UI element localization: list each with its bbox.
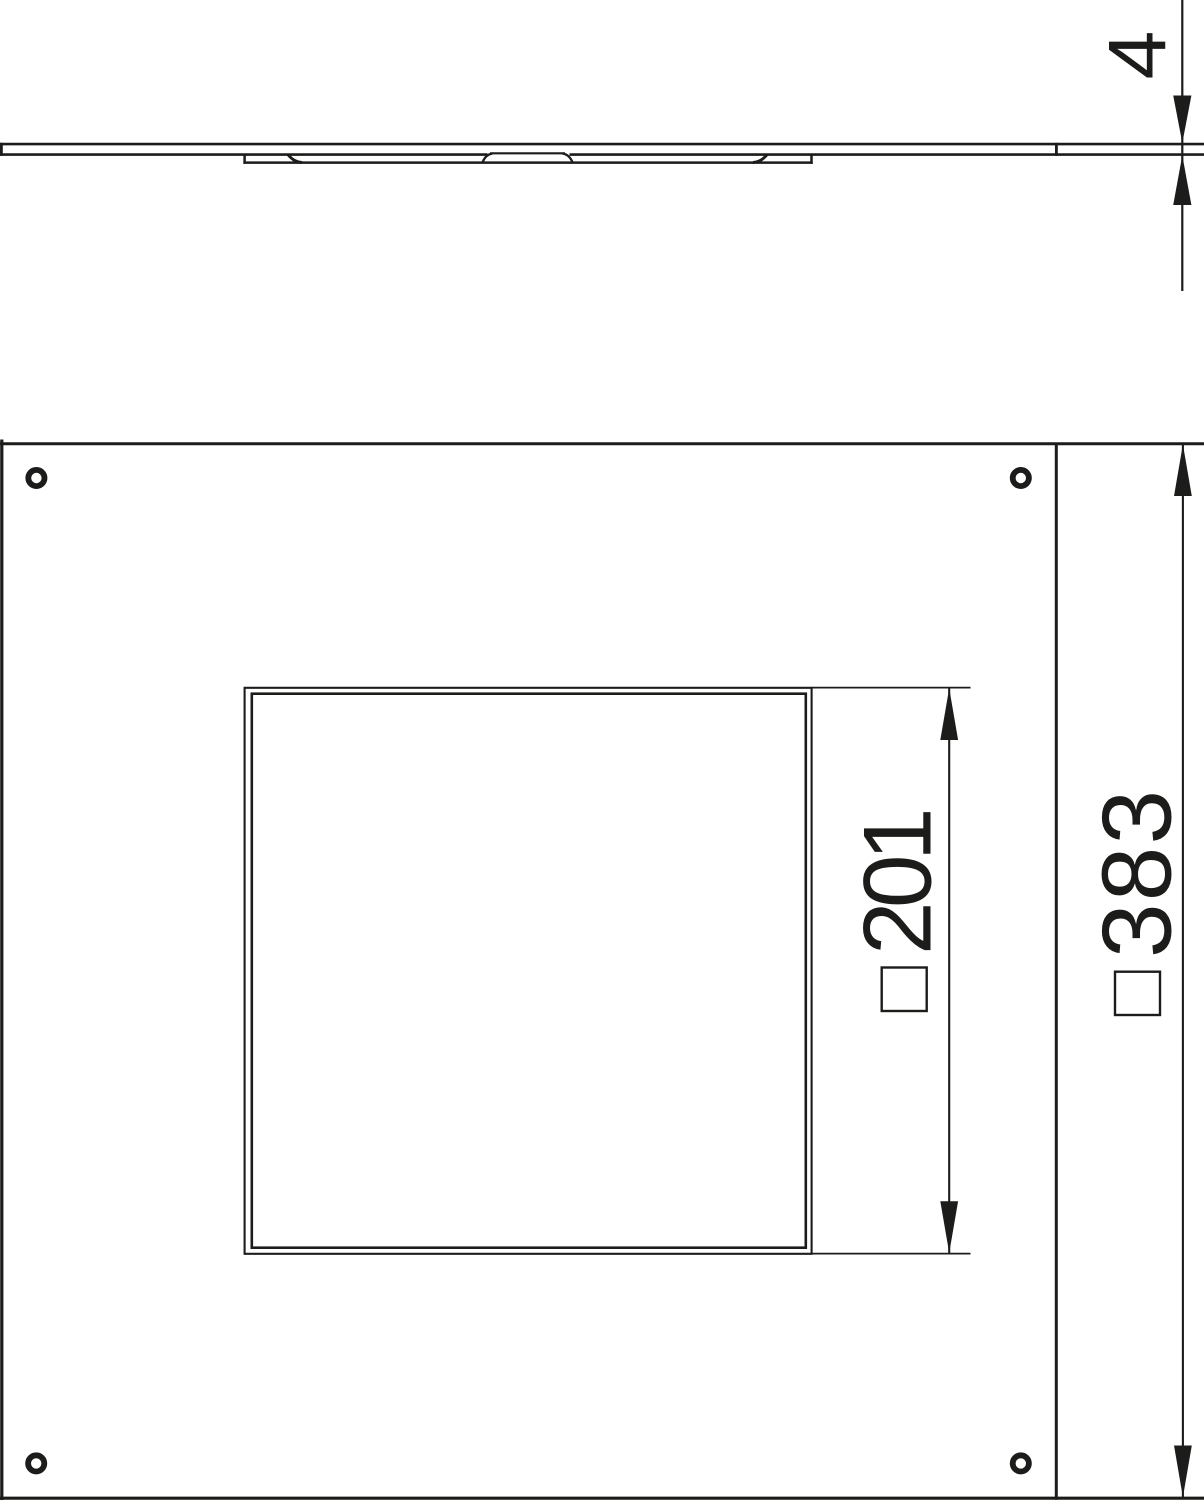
svg-text:4: 4 bbox=[1092, 30, 1183, 79]
svg-text:201: 201 bbox=[845, 808, 952, 956]
svg-text:383: 383 bbox=[1082, 790, 1192, 958]
